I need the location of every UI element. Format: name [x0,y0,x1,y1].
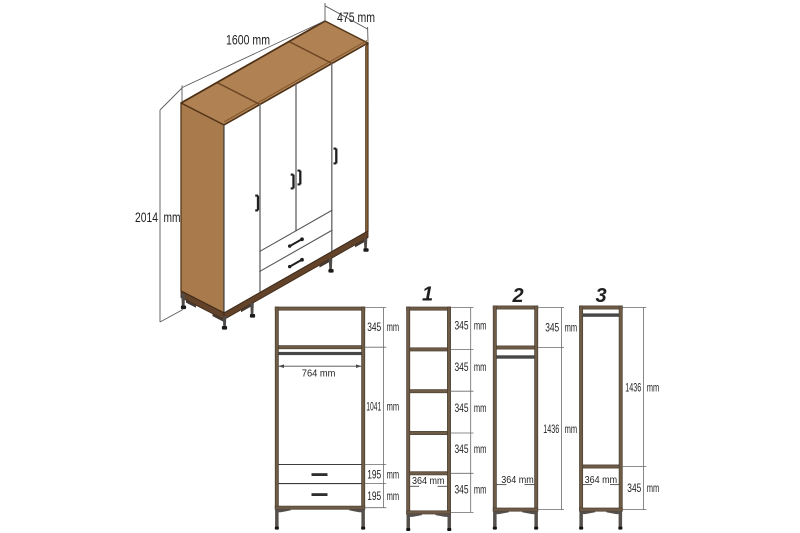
svg-text:345: 345 [455,318,469,332]
svg-text:195: 195 [367,467,381,481]
svg-text:3: 3 [595,285,606,307]
svg-text:1041: 1041 [366,399,381,413]
svg-text:764 mm: 764 mm [302,367,336,379]
svg-text:345: 345 [367,320,381,334]
svg-text:345: 345 [455,482,469,496]
svg-text:364 mm: 364 mm [585,474,618,486]
svg-text:mm: mm [474,401,487,415]
svg-text:mm: mm [565,320,578,334]
svg-text:345: 345 [627,481,641,495]
svg-text:mm: mm [387,489,400,503]
svg-text:364 mm: 364 mm [501,474,534,486]
svg-text:195: 195 [367,489,381,503]
svg-text:345: 345 [455,401,469,415]
svg-text:345: 345 [455,360,469,374]
svg-text:mm: mm [474,318,487,332]
svg-text:mm: mm [164,209,181,225]
svg-text:1436: 1436 [625,380,641,394]
svg-text:mm: mm [387,399,400,413]
svg-text:2014: 2014 [135,209,158,225]
svg-text:345: 345 [545,320,559,334]
svg-text:475 mm: 475 mm [337,9,375,25]
svg-text:mm: mm [474,442,487,456]
svg-text:364 mm: 364 mm [412,475,445,487]
svg-text:1: 1 [422,284,433,306]
svg-text:mm: mm [474,482,487,496]
svg-text:1600 mm: 1600 mm [226,32,270,48]
svg-text:mm: mm [387,467,400,481]
svg-text:1436: 1436 [543,422,559,436]
svg-text:mm: mm [647,481,660,495]
svg-text:2: 2 [511,285,523,307]
svg-text:345: 345 [455,442,469,456]
svg-text:mm: mm [387,320,400,334]
svg-text:mm: mm [647,380,660,394]
svg-text:mm: mm [565,422,578,436]
svg-text:mm: mm [474,360,487,374]
